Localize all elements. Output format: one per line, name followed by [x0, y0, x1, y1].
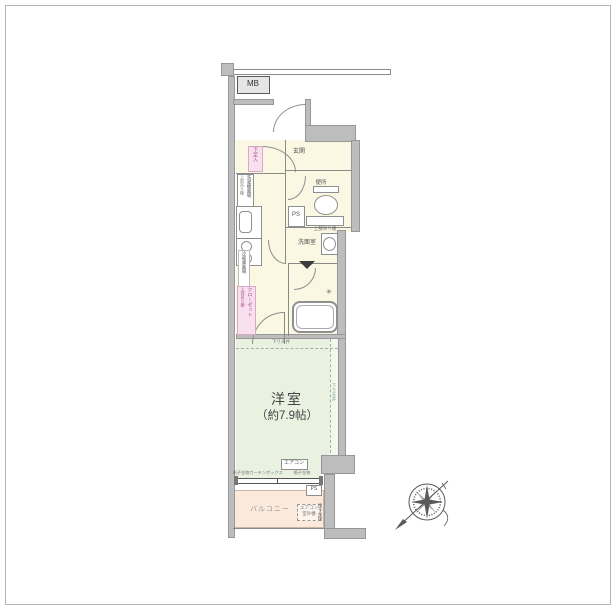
- bathtub-inner: [296, 305, 334, 329]
- wall-room-right: [338, 338, 346, 458]
- dropped-ceiling-dashed-line: [236, 348, 338, 349]
- shoe-box: 下足入: [248, 146, 263, 172]
- wall-entrance-left: [233, 99, 274, 105]
- toilet-tank-icon: [313, 186, 339, 193]
- kitchen-divider: [236, 238, 262, 239]
- window-end-right: [319, 476, 323, 485]
- toilet-shelf-box: 上部吊り棚: [306, 216, 344, 226]
- corridor-line-inner: [222, 74, 391, 75]
- toilet-shelf-label: 上部吊り棚: [314, 226, 337, 231]
- faucet-icon: ✳: [326, 289, 332, 297]
- fridge-space-label: 冷蔵庫置場: [241, 251, 247, 287]
- shoe-box-label: 下足入: [252, 147, 259, 162]
- wall-balcony-right: [324, 474, 335, 536]
- wall-right-upper: [351, 140, 360, 232]
- laundry-pole-label: 物干金物: [317, 503, 322, 527]
- kitchen-sink-icon: [239, 211, 252, 233]
- wall-left: [228, 76, 235, 538]
- closet-label: クローゼット: [247, 287, 254, 334]
- wall-top-left-pillar: [221, 63, 234, 76]
- compass-icon: [385, 476, 467, 554]
- partition-hall-bath: [288, 264, 289, 336]
- dropped-ceiling-side-label: 下り天井: [331, 383, 336, 409]
- laundry-space-label: 洗濯機置場: [246, 175, 252, 206]
- laundry-space-box: 上部吊り棚 洗濯機置場: [237, 174, 254, 207]
- window-line-outer: [237, 478, 320, 479]
- closet-box: 上部吊り棚 クローゼット: [237, 286, 256, 335]
- wall-right-mid: [337, 230, 346, 338]
- window-center-tick: [277, 478, 278, 484]
- toilet-bowl-icon: [314, 195, 338, 215]
- laundry-shelf-label: 上部吊り棚: [239, 175, 245, 206]
- floor-plan: MB ✳ PS PS エアコン エアコン 室外機 物干金物 玄関 下足入 上部吊…: [0, 0, 616, 610]
- window-end-left: [234, 476, 238, 485]
- wall-bottom-right: [324, 528, 366, 539]
- balcony-bottom-line: [233, 528, 324, 529]
- wall-pillar-bottom-right: [321, 455, 355, 474]
- washbasin-bowl-icon: [323, 237, 336, 251]
- bath-folding-door-mark: [299, 261, 315, 269]
- corridor-line-end: [390, 69, 391, 75]
- fridge-space-box: 冷蔵庫置場: [238, 250, 250, 288]
- wall-entrance-right-block: [305, 125, 356, 142]
- corridor-line-outer: [222, 69, 391, 70]
- closet-shelf-label: 上部吊り棚: [240, 287, 246, 334]
- window-line-inner: [237, 483, 320, 484]
